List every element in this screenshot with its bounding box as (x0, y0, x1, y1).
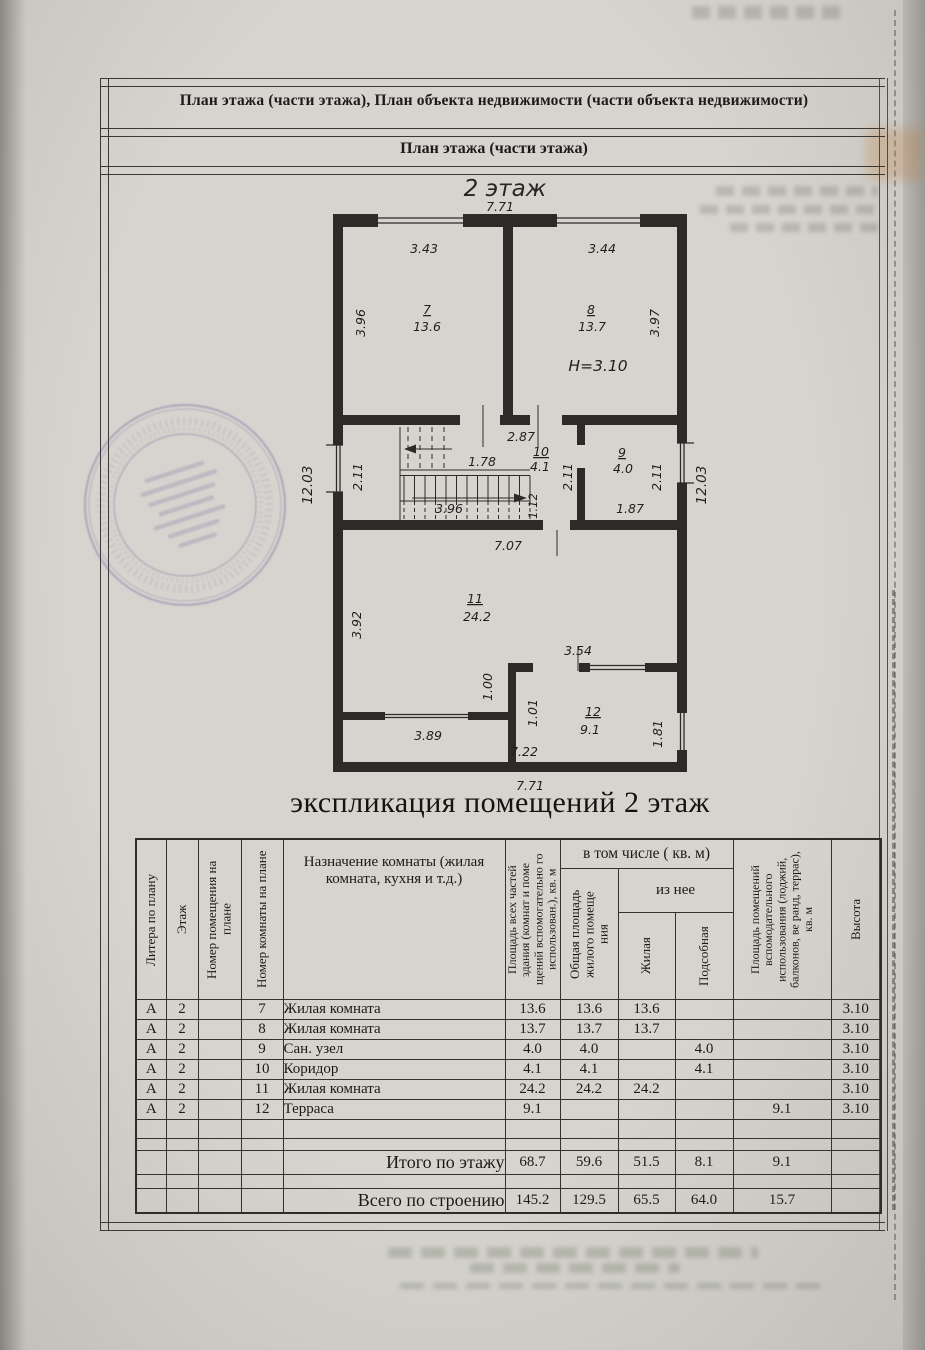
plan-label: 12.03 (694, 466, 710, 505)
table-cell: 3.10 (831, 1040, 881, 1060)
table-cell (136, 1175, 166, 1189)
document-title-line1: План этажа (части этажа), План объекта н… (108, 92, 880, 110)
plan-label: 9.1 (580, 722, 600, 737)
table-cell (241, 1120, 283, 1139)
table-cell (675, 1139, 733, 1151)
table-total-row: Итого по этажу68.759.651.58.19.1 (136, 1151, 881, 1175)
plan-label: 3.44 (588, 241, 616, 256)
table-cell (198, 1080, 241, 1100)
plan-label: 1.00 (480, 673, 495, 701)
table-cell: 4.0 (560, 1040, 618, 1060)
table-cell: Жилая комната (283, 1080, 505, 1100)
table-cell: 129.5 (560, 1189, 618, 1214)
header-nomer-pomeshcheniya: Номер помещения на плане (198, 839, 241, 1000)
table-cell (560, 1100, 618, 1120)
table-cell (831, 1139, 881, 1151)
table-cell (675, 1020, 733, 1040)
table-cell (198, 1189, 241, 1214)
page-edge-right (903, 0, 925, 1350)
table-cell: Жилая комната (283, 1000, 505, 1020)
table-cell: 8.1 (675, 1151, 733, 1175)
plan-label: 4.0 (613, 461, 633, 476)
table-cell (198, 1100, 241, 1120)
bleed-through-text-right-3 (730, 223, 880, 232)
bleed-through-text-bottom-2 (470, 1263, 680, 1273)
table-row: А29Сан. узел4.04.04.03.10 (136, 1040, 881, 1060)
table-cell: А (136, 1020, 166, 1040)
table-cell: 13.6 (618, 1000, 675, 1020)
table-cell: А (136, 1100, 166, 1120)
table-cell (198, 1000, 241, 1020)
table-cell: Всего по строению (283, 1189, 505, 1214)
bleed-through-text-top (692, 6, 842, 19)
table-cell (283, 1175, 505, 1189)
table-cell (283, 1120, 505, 1139)
table-cell: 2 (166, 1000, 198, 1020)
plan-label: H=3.10 (568, 357, 627, 375)
bleed-through-text-bottom-1 (388, 1247, 758, 1258)
table-cell (831, 1189, 881, 1214)
table-cell: 3.10 (831, 1060, 881, 1080)
table-cell (136, 1189, 166, 1214)
table-cell (166, 1189, 198, 1214)
table-cell: 2 (166, 1080, 198, 1100)
page-edge-left (0, 0, 26, 1350)
table-cell: 2 (166, 1020, 198, 1040)
table-cell: 4.0 (505, 1040, 560, 1060)
table-cell: Жилая комната (283, 1020, 505, 1040)
explication-table-body: А27Жилая комната13.613.613.63.10А28Жилая… (136, 1000, 881, 1214)
stamp-graphic (62, 390, 308, 630)
table-cell: 145.2 (505, 1189, 560, 1214)
table-cell (198, 1060, 241, 1080)
plan-label: 3.43 (410, 241, 438, 256)
table-cell (560, 1120, 618, 1139)
table-cell (618, 1175, 675, 1189)
floor-plan-svg: 7.713.433.443.96713.6813.73.97H=3.1012.0… (290, 200, 720, 800)
table-cell: Коридор (283, 1060, 505, 1080)
header-nomer-komnaty: Номер комнаты на плане (241, 839, 283, 1000)
header-ploshchad-vsekh: Площадь всех частей здания (комнат и пом… (505, 839, 560, 1000)
table-cell: 10 (241, 1060, 283, 1080)
table-cell: 9.1 (505, 1100, 560, 1120)
floor-plan-title: 2 этаж (400, 176, 610, 202)
table-cell: 13.7 (618, 1020, 675, 1040)
table-cell (136, 1151, 166, 1175)
table-cell (733, 1120, 831, 1139)
header-obshchaya-ploshchad: Общая площадь жилого помеще ния (560, 869, 618, 1000)
header-vysota: Высота (831, 839, 881, 1000)
table-row: А212Терраса9.19.13.10 (136, 1100, 881, 1120)
table-cell (166, 1120, 198, 1139)
table-cell: 9.1 (733, 1151, 831, 1175)
plan-label: 7 (423, 302, 431, 317)
plan-label: 10 (533, 444, 549, 459)
plan-label: 3.54 (564, 643, 592, 658)
table-cell (198, 1175, 241, 1189)
header-podsobnaya: Подсобная (675, 913, 733, 1000)
table-cell: 12 (241, 1100, 283, 1120)
bleed-through-text-right-1 (716, 186, 878, 196)
table-cell (198, 1040, 241, 1060)
plan-label: 3.96 (435, 501, 463, 516)
plan-label: 11 (467, 591, 483, 606)
table-cell (166, 1151, 198, 1175)
table-cell (675, 1000, 733, 1020)
plan-label: 7.07 (494, 538, 522, 553)
table-cell (618, 1120, 675, 1139)
table-cell: 9 (241, 1040, 283, 1060)
table-row: А210Коридор4.14.14.13.10 (136, 1060, 881, 1080)
document-title-line2: План этажа (части этажа) (108, 140, 880, 158)
table-cell (241, 1175, 283, 1189)
table-cell (618, 1100, 675, 1120)
frame-rule-under-title2 (101, 166, 885, 175)
table-cell (618, 1060, 675, 1080)
table-cell (675, 1120, 733, 1139)
plan-label: 2.11 (649, 463, 664, 491)
header-iz-nee: из нее (618, 869, 733, 913)
plan-label: 2.11 (560, 463, 575, 491)
table-cell: 13.7 (505, 1020, 560, 1040)
table-cell: 65.5 (618, 1189, 675, 1214)
table-cell (618, 1139, 675, 1151)
plan-label: 7.71 (486, 200, 514, 214)
explication-table: Литера по плану Этаж Номер помещения на … (135, 838, 882, 1214)
table-cell (831, 1175, 881, 1189)
table-cell (733, 1000, 831, 1020)
plan-label: 1.01 (525, 699, 540, 727)
header-ploshchad-vspomogat: Площадь помещений вспомодательного испол… (733, 839, 831, 1000)
plan-label: 1.87 (616, 501, 644, 516)
frame-rule-top (101, 78, 885, 87)
table-cell (136, 1139, 166, 1151)
table-cell (733, 1139, 831, 1151)
page-edge-dashed-line-lower (892, 590, 897, 1210)
table-cell (675, 1100, 733, 1120)
table-cell: А (136, 1040, 166, 1060)
table-cell (831, 1151, 881, 1175)
table-cell: 15.7 (733, 1189, 831, 1214)
plan-label: 3.97 (647, 309, 662, 337)
table-cell: 11 (241, 1080, 283, 1100)
table-cell (136, 1120, 166, 1139)
door-openings (460, 414, 586, 673)
plan-label: 2.87 (507, 429, 535, 444)
plan-label: 13.7 (578, 319, 606, 334)
table-cell: 8 (241, 1020, 283, 1040)
table-cell (241, 1139, 283, 1151)
table-cell (241, 1189, 283, 1214)
table-cell (733, 1040, 831, 1060)
table-cell (198, 1151, 241, 1175)
table-cell (560, 1139, 618, 1151)
plan-label: 24.2 (463, 609, 491, 624)
table-cell (505, 1139, 560, 1151)
table-cell: 59.6 (560, 1151, 618, 1175)
table-cell (675, 1080, 733, 1100)
table-cell: 51.5 (618, 1151, 675, 1175)
table-cell: Сан. узел (283, 1040, 505, 1060)
table-cell (166, 1175, 198, 1189)
walls (333, 214, 687, 772)
table-cell (505, 1120, 560, 1139)
table-cell: А (136, 1080, 166, 1100)
plan-label: 12.03 (300, 466, 316, 505)
bleed-through-text-right-2 (700, 205, 880, 214)
plan-label: 3.92 (349, 611, 364, 639)
table-header: Литера по плану Этаж Номер помещения на … (136, 839, 881, 1000)
table-row (136, 1175, 881, 1189)
table-cell: 2 (166, 1100, 198, 1120)
plan-label: 8 (587, 302, 595, 317)
table-cell: 68.7 (505, 1151, 560, 1175)
frame-rule-left (100, 78, 109, 1231)
table-cell (733, 1175, 831, 1189)
header-etazh: Этаж (166, 839, 198, 1000)
frame-rule-bottom (101, 1222, 885, 1231)
plan-label: 1.12 (526, 493, 540, 519)
plan-label: 9 (618, 445, 626, 460)
table-cell (283, 1139, 505, 1151)
table-cell (241, 1151, 283, 1175)
table-cell: 24.2 (505, 1080, 560, 1100)
plan-label: 3.89 (414, 728, 442, 743)
table-cell (560, 1175, 618, 1189)
table-cell (733, 1060, 831, 1080)
table-cell (618, 1040, 675, 1060)
header-zhilaya: Жилая (618, 913, 675, 1000)
explication-table-wrap: Литера по плану Этаж Номер помещения на … (135, 838, 882, 1214)
header-v-tom-chisle: в том числе ( кв. м) (560, 839, 733, 869)
plan-label: 1.78 (468, 454, 496, 469)
table-cell (733, 1020, 831, 1040)
table-cell: 13.6 (505, 1000, 560, 1020)
table-cell: А (136, 1060, 166, 1080)
table-cell: Терраса (283, 1100, 505, 1120)
bleed-through-text-bottom-3 (400, 1283, 820, 1289)
frame-rule-under-title1 (101, 128, 885, 137)
header-naznachenie: Назначение комнаты (жилая комната, кухня… (283, 839, 505, 1000)
table-row: А28Жилая комната13.713.713.73.10 (136, 1020, 881, 1040)
table-cell: А (136, 1000, 166, 1020)
header-litera: Литера по плану (136, 839, 166, 1000)
table-row: А27Жилая комната13.613.613.63.10 (136, 1000, 881, 1020)
table-cell: 4.1 (675, 1060, 733, 1080)
table-row: А211Жилая комната24.224.224.23.10 (136, 1080, 881, 1100)
scanned-document-page: { "document": { "header_line1": "План эт… (0, 0, 925, 1350)
table-cell: 7 (241, 1000, 283, 1020)
table-cell (198, 1020, 241, 1040)
table-row (136, 1139, 881, 1151)
table-cell: 24.2 (618, 1080, 675, 1100)
table-cell (831, 1120, 881, 1139)
table-cell: 4.1 (560, 1060, 618, 1080)
plan-label: 13.6 (413, 319, 441, 334)
table-cell: 3.10 (831, 1000, 881, 1020)
table-cell: 24.2 (560, 1080, 618, 1100)
table-cell (505, 1175, 560, 1189)
table-cell: Итого по этажу (283, 1151, 505, 1175)
table-cell (733, 1080, 831, 1100)
plan-label: 1.81 (650, 720, 665, 748)
official-stamp (62, 390, 308, 630)
table-cell: 13.7 (560, 1020, 618, 1040)
plan-label: 2.11 (350, 463, 365, 491)
table-cell: 4.1 (505, 1060, 560, 1080)
table-cell (166, 1139, 198, 1151)
table-cell: 64.0 (675, 1189, 733, 1214)
plan-label: 12 (585, 704, 601, 719)
table-cell: 4.0 (675, 1040, 733, 1060)
table-cell: 9.1 (733, 1100, 831, 1120)
table-row (136, 1120, 881, 1139)
table-cell: 3.10 (831, 1020, 881, 1040)
explication-title: экспликация помещений 2 этаж (150, 786, 850, 820)
table-cell: 3.10 (831, 1100, 881, 1120)
plan-label: 7.22 (510, 744, 538, 759)
table-cell: 2 (166, 1040, 198, 1060)
plan-label: 4.1 (530, 459, 550, 474)
table-cell: 3.10 (831, 1080, 881, 1100)
table-cell: 13.6 (560, 1000, 618, 1020)
table-cell (198, 1139, 241, 1151)
table-cell (675, 1175, 733, 1189)
table-total-row: Всего по строению145.2129.565.564.015.7 (136, 1189, 881, 1214)
table-cell: 2 (166, 1060, 198, 1080)
table-cell (198, 1120, 241, 1139)
plan-label: 3.96 (353, 309, 368, 337)
